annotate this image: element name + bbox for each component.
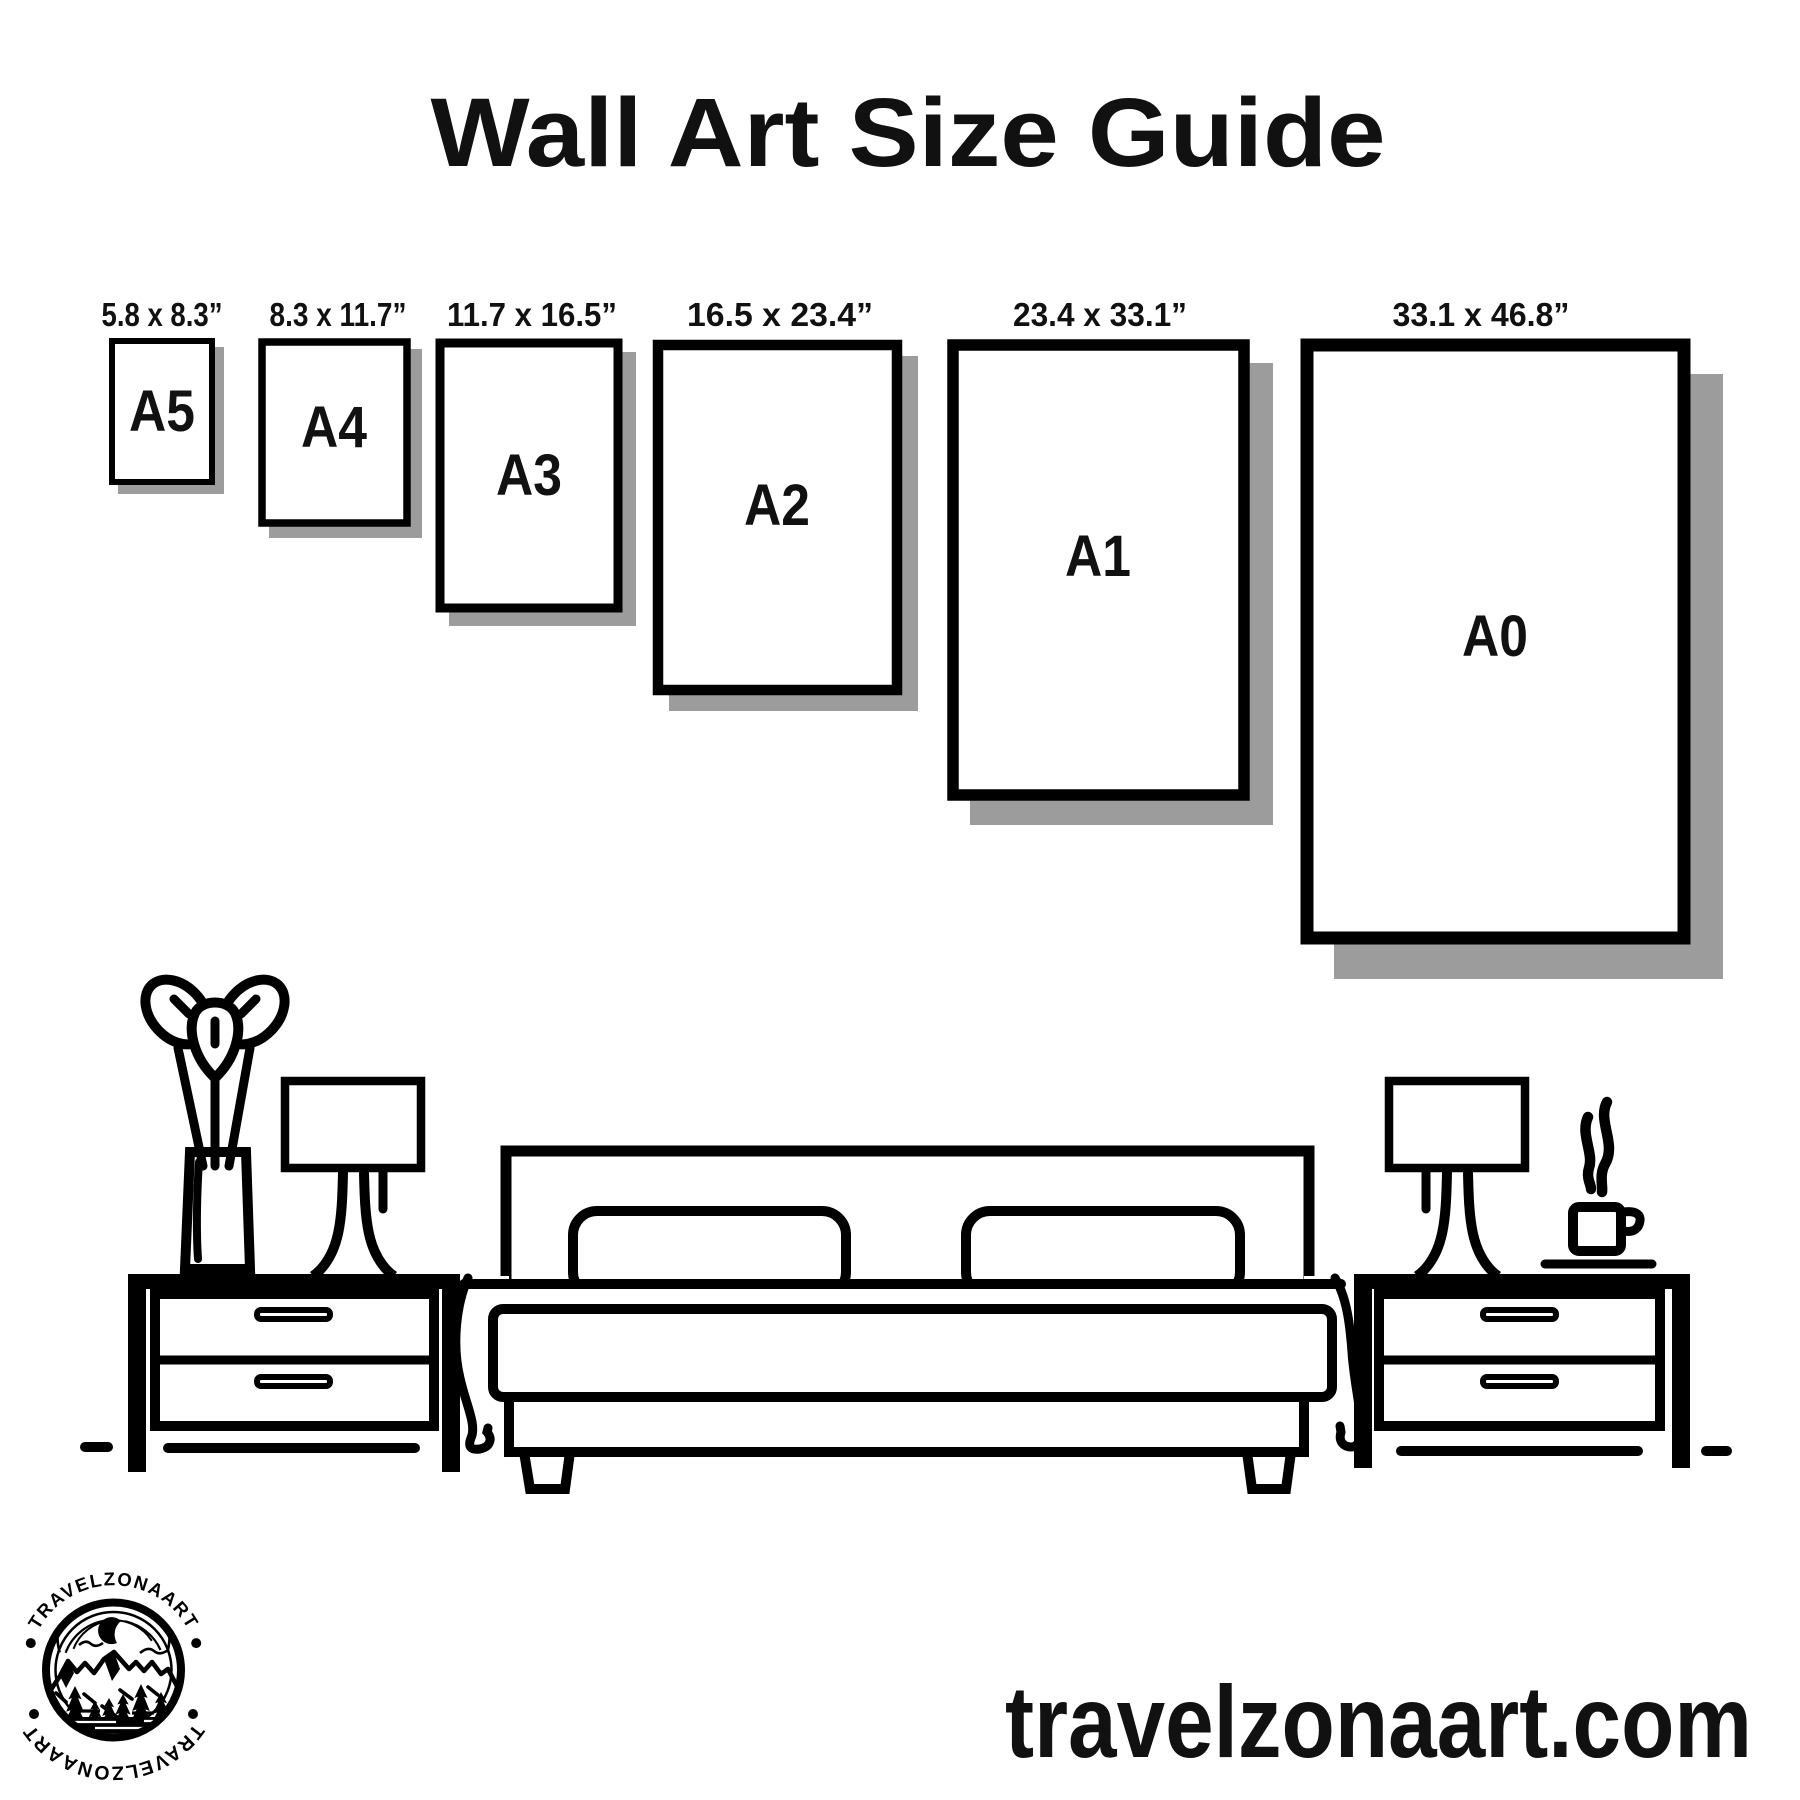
svg-text:A1: A1 — [1065, 524, 1131, 589]
svg-text:A4: A4 — [301, 395, 367, 460]
svg-text:8.3 x 11.7”: 8.3 x 11.7” — [270, 296, 407, 333]
svg-text:A2: A2 — [744, 473, 810, 538]
svg-text:A0: A0 — [1462, 604, 1528, 669]
svg-text:Wall Art Size Guide: Wall Art Size Guide — [431, 78, 1386, 187]
svg-text:A5: A5 — [129, 379, 195, 444]
svg-text:33.1 x 46.8”: 33.1 x 46.8” — [1393, 296, 1570, 333]
svg-text:A3: A3 — [496, 443, 562, 508]
svg-text:11.7 x 16.5”: 11.7 x 16.5” — [447, 296, 617, 333]
svg-text:5.8 x 8.3”: 5.8 x 8.3” — [102, 296, 223, 333]
svg-text:travelzonaart.com: travelzonaart.com — [1005, 1665, 1752, 1779]
svg-text:23.4 x 33.1”: 23.4 x 33.1” — [1013, 296, 1187, 333]
svg-text:16.5 x 23.4”: 16.5 x 23.4” — [687, 296, 873, 333]
